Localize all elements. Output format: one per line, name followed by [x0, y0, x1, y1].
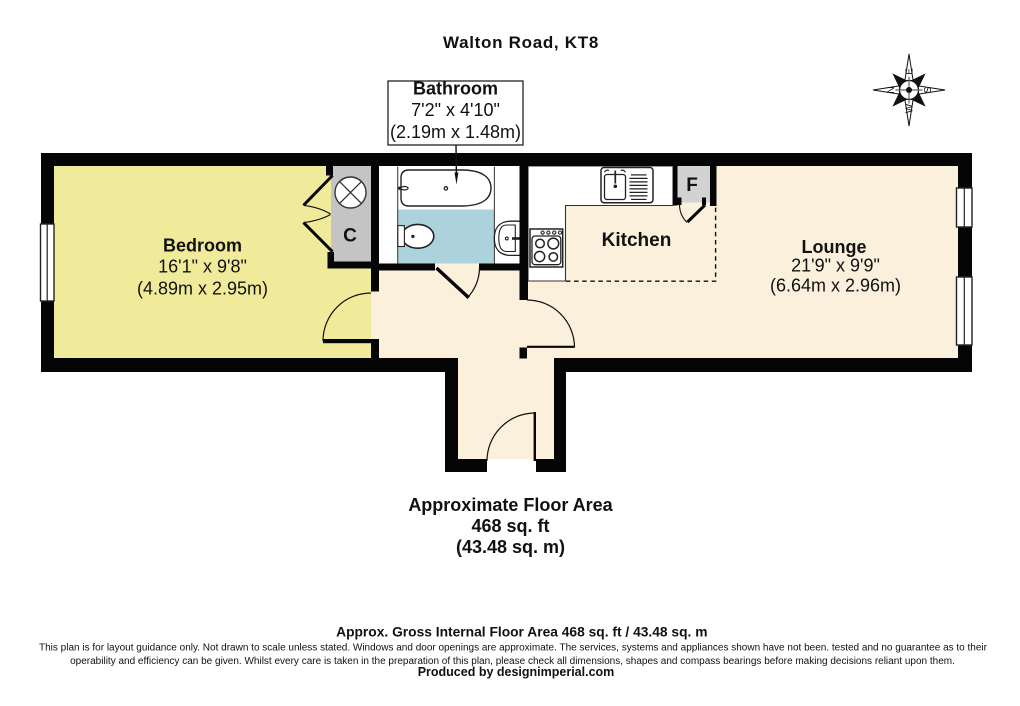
- svg-text:7'2" x 4'10": 7'2" x 4'10": [411, 100, 500, 120]
- svg-text:Bedroom: Bedroom: [163, 236, 242, 256]
- svg-text:468 sq. ft: 468 sq. ft: [471, 516, 549, 536]
- svg-text:Approximate Floor Area: Approximate Floor Area: [408, 495, 613, 515]
- svg-text:(2.19m x 1.48m): (2.19m x 1.48m): [390, 122, 521, 142]
- svg-text:F: F: [686, 175, 698, 196]
- svg-text:Approx. Gross Internal Floor A: Approx. Gross Internal Floor Area 468 sq…: [336, 624, 707, 639]
- svg-text:E: E: [905, 68, 916, 75]
- svg-text:C: C: [343, 226, 357, 247]
- svg-text:16'1" x 9'8": 16'1" x 9'8": [158, 257, 247, 277]
- svg-text:(43.48 sq. m): (43.48 sq. m): [456, 537, 565, 557]
- svg-text:N: N: [886, 86, 897, 93]
- svg-text:Walton Road, KT8: Walton Road, KT8: [443, 33, 599, 52]
- svg-text:21'9" x 9'9": 21'9" x 9'9": [791, 256, 880, 276]
- svg-text:Produced by designimperial.com: Produced by designimperial.com: [418, 665, 615, 679]
- svg-text:(6.64m x 2.96m): (6.64m x 2.96m): [770, 276, 901, 296]
- svg-text:Bathroom: Bathroom: [413, 79, 498, 99]
- svg-text:This plan is for layout guidan: This plan is for layout guidance only. N…: [39, 643, 988, 654]
- svg-text:(4.89m x 2.95m): (4.89m x 2.95m): [137, 279, 268, 299]
- svg-text:Kitchen: Kitchen: [602, 230, 672, 251]
- svg-text:S: S: [923, 86, 934, 93]
- svg-text:W: W: [905, 103, 916, 113]
- svg-text:Lounge: Lounge: [802, 237, 867, 257]
